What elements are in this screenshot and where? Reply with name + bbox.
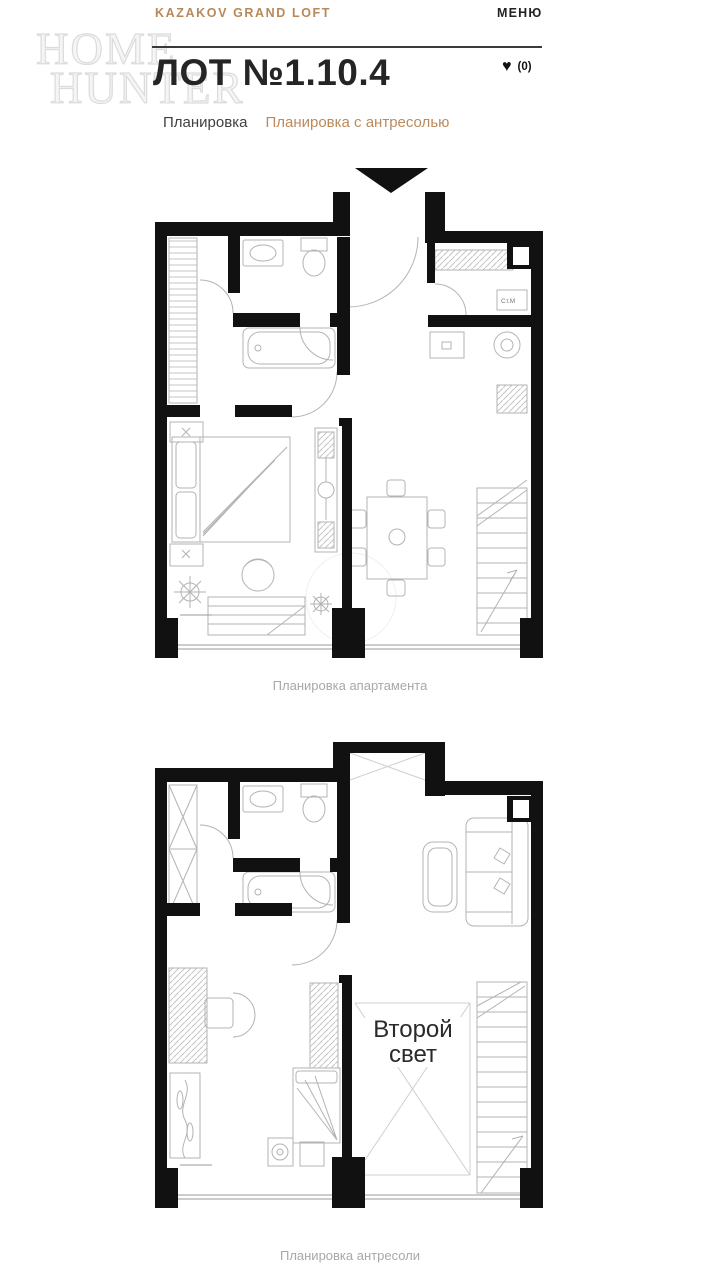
favorites-count: (0) [518,61,532,73]
page-title: ЛОТ №1.10.4 [153,52,390,94]
heart-icon[interactable]: ♥ [502,59,512,75]
brand-link[interactable]: KAZAKOV GRAND LOFT [155,6,331,20]
void-label-line1: Второй [373,1016,452,1043]
menu-button[interactable]: МЕНЮ [497,6,542,20]
favorites[interactable]: ♥ (0) [502,59,532,75]
corner-shaft [513,800,529,818]
floor-plan-mezzanine: Второй свет [155,740,545,1210]
tab-planirovka-s-antresolyu[interactable]: Планировка с антресолью [265,114,449,131]
void-label-line2: свет [389,1041,437,1068]
mezzanine-walls-group [155,742,543,1208]
plant-icon [174,576,206,608]
header-divider [152,46,542,48]
plan-tabs: Планировка Планировка с антресолью [163,114,449,131]
corner-shaft [513,247,529,265]
apartment-walls-group [155,168,543,658]
apartment-plan-caption: Планировка апартамента [155,678,545,693]
entry-arrow-icon [355,168,428,193]
washer-label: Ст.М [501,298,515,305]
page: { "header": { "brand": "KAZAKOV GRAND LO… [0,0,724,1280]
plant-icon [310,593,332,615]
mezzanine-plan-caption: Планировка антресоли [155,1248,545,1263]
floor-plan-apartment: Ст.М [155,160,545,660]
tab-planirovka[interactable]: Планировка [163,114,247,131]
